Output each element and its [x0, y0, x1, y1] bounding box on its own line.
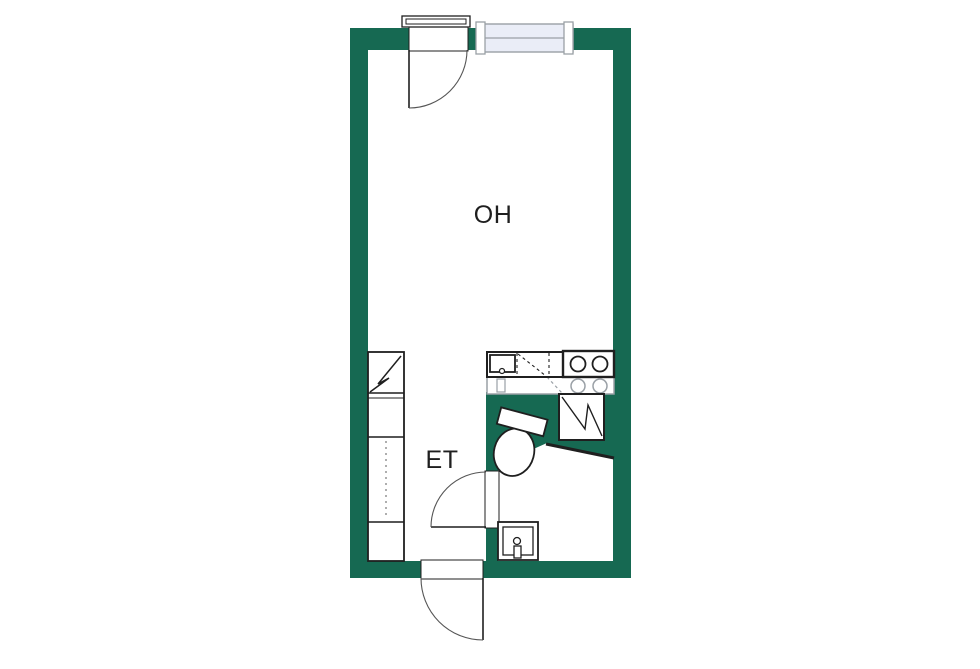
- room-label-living: OH: [458, 203, 528, 228]
- entry-door-swing-arc: [421, 578, 483, 640]
- kitchen-counter: [487, 351, 614, 394]
- floor-plan-canvas: OH ET: [0, 0, 980, 669]
- sink-faucet-lower: [497, 379, 505, 392]
- balcony-door-swing-arc: [409, 50, 467, 108]
- burner-top-right: [593, 357, 608, 372]
- balcony-door: [402, 16, 470, 108]
- entry-door-opening: [421, 560, 483, 579]
- entry-door: [421, 560, 483, 640]
- closet-column-outline: [368, 352, 404, 561]
- washbasin-faucet-handle: [514, 546, 521, 558]
- window-post-right: [564, 22, 573, 54]
- burner-top-left: [571, 357, 586, 372]
- window-post-left: [476, 22, 485, 54]
- closet-column: [368, 352, 404, 561]
- bathroom-door-swing-arc: [431, 472, 486, 527]
- balcony-door-frame: [402, 16, 470, 27]
- wall-bottom: [350, 561, 631, 578]
- wall-right: [613, 28, 631, 578]
- bathroom-door: [431, 471, 499, 528]
- balcony-door-opening: [409, 27, 468, 51]
- sink-faucet: [500, 369, 505, 374]
- bathroom-door-opening: [485, 471, 499, 528]
- wall-left: [350, 28, 368, 578]
- floor-plan: [0, 0, 980, 669]
- room-label-hall: ET: [412, 448, 472, 473]
- washbasin-faucet: [514, 538, 521, 545]
- washbasin-icon: [498, 522, 538, 560]
- shower-icon: [559, 394, 604, 440]
- window: [476, 22, 573, 54]
